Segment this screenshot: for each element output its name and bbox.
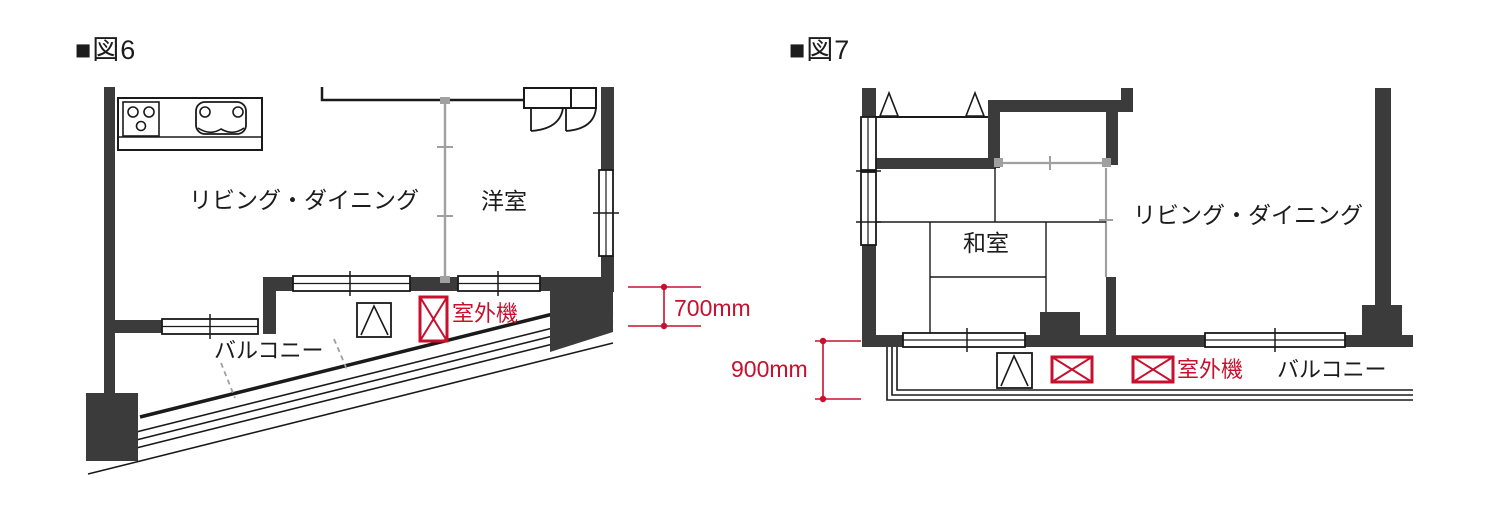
fig7-label-japanese-room: 和室 (963, 231, 1009, 256)
floorplan-drawing (0, 0, 1497, 532)
fig7-dimension-900mm (815, 338, 861, 402)
fig7-plan (815, 88, 1413, 402)
fig6-corner-column (550, 277, 613, 352)
fig6-balcony-railing (88, 313, 613, 474)
fig6-sliding-partition (437, 97, 453, 283)
fig7-outdoor-unit-marker (1052, 357, 1092, 382)
fig7-title: ■図7 (789, 36, 850, 66)
fig7-sliding-partitions (994, 156, 1113, 277)
fig6-title: ■図6 (75, 36, 136, 66)
fig6-plan (86, 87, 701, 474)
fig7-outdoor-unit-marker (1133, 357, 1173, 382)
fig7-door-triangle-icon (966, 93, 984, 116)
fig6-water-heater-icon (357, 303, 391, 337)
fig6-outdoor-unit-marker (420, 297, 447, 341)
floorplan-canvas: ■図6 リビング・ダイニング 洋室 バルコニー 室外機 700mm ■図7 和室… (0, 0, 1497, 532)
fig6-dimension-text: 700mm (674, 296, 751, 321)
fig7-closet (876, 93, 988, 117)
fig7-label-living-dining: リビング・ダイニング (1133, 203, 1363, 228)
fig6-label-western-room: 洋室 (481, 189, 527, 214)
fig6-label-balcony: バルコニー (214, 339, 324, 363)
fig6-kitchen-counter (118, 98, 262, 150)
fig7-water-heater-icon (997, 353, 1032, 388)
fig7-right-pillar (1375, 88, 1391, 308)
fig6-label-outdoor-unit: 室外機 (452, 302, 518, 326)
fig6-top-wall-line (322, 87, 524, 100)
fig7-label-outdoor-unit: 室外機 (1177, 358, 1243, 382)
fig7-label-balcony: バルコニー (1277, 358, 1387, 382)
fig7-door-triangle-icon (880, 93, 898, 116)
fig7-dimension-text: 900mm (731, 357, 808, 382)
fig6-label-living-dining: リビング・ダイニング (189, 188, 419, 213)
fig6-closet (524, 88, 596, 131)
